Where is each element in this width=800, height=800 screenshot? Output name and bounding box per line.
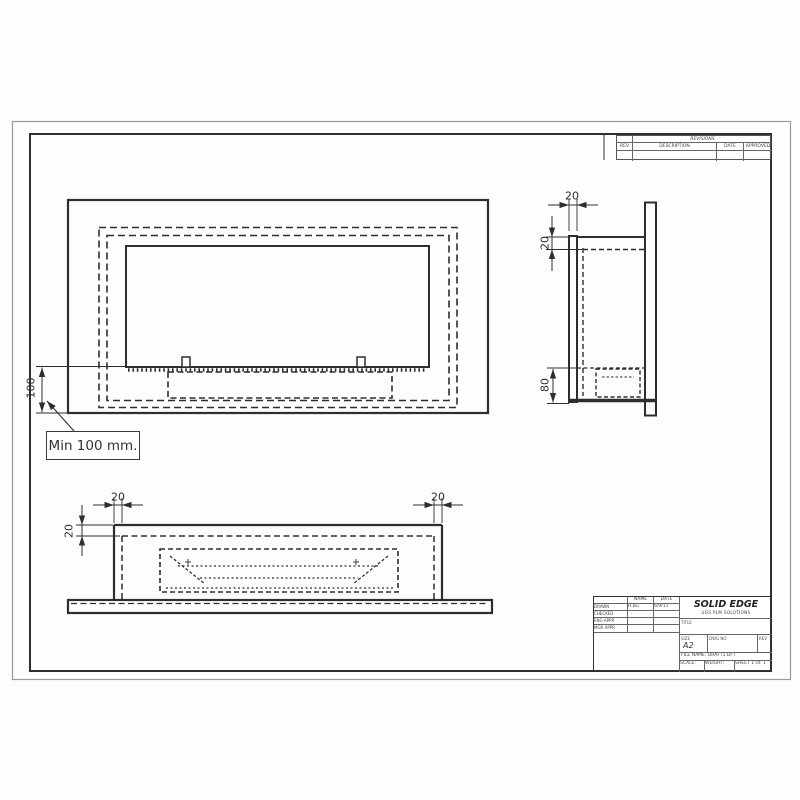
tb-blank-area <box>594 633 680 672</box>
tb-row-checked: CHECKED <box>594 611 628 618</box>
front-view <box>68 200 488 413</box>
revisions-col-approved: APPROVED <box>744 143 772 151</box>
tb-checked-name <box>628 611 654 618</box>
drawing-sheet: 100 20 20 80 20 20 20 Min 100 mm. REVISI… <box>0 0 800 800</box>
tb-col-date: DATE <box>654 597 680 604</box>
tb-file-value: DRAFT1.DFT <box>708 653 736 658</box>
tb-row-engappr: ENG APPR <box>594 618 628 625</box>
tb-sheet-cell: SHEET 1 OF 1 <box>735 661 772 672</box>
revisions-col-rev: REV <box>617 143 633 151</box>
dim-label-side-top-20: 20 <box>539 236 552 250</box>
tb-rev-cell: REV <box>758 635 772 653</box>
tb-row-mgrappr: MGR APPR <box>594 625 628 633</box>
tb-title-cell: TITLE <box>680 619 772 635</box>
dim-label-side-80: 80 <box>539 378 552 392</box>
min-clearance-note: Min 100 mm. <box>46 431 140 460</box>
dim-label-side-flange-20: 20 <box>565 190 579 203</box>
revisions-empty-cell <box>744 151 772 161</box>
tb-drawn-name: H.Bu <box>628 604 654 611</box>
bottom-view <box>68 525 492 613</box>
solid-edge-logo: SOLID EDGE <box>680 600 772 610</box>
title-block: NAME DATE DRAWN H.Bu 6/9/11 CHECKED ENG … <box>593 596 771 671</box>
tb-engappr-name <box>628 618 654 625</box>
tb-scale-cell: SCALE: <box>680 661 705 672</box>
tb-engappr-date <box>654 618 680 625</box>
tb-weight-cell: WEIGHT: <box>705 661 735 672</box>
revisions-col-description: DESCRIPTION <box>633 143 717 151</box>
tb-checked-date <box>654 611 680 618</box>
revisions-title: REVISIONS <box>633 136 772 143</box>
tb-file-label: FILE NAME: <box>681 653 706 658</box>
tb-mgrappr-date <box>654 625 680 633</box>
min-note-leader <box>47 401 74 431</box>
revisions-empty-cell <box>633 151 717 161</box>
revisions-empty-cell <box>717 151 744 161</box>
revisions-table: REVISIONS REV DESCRIPTION DATE APPROVED <box>616 135 771 160</box>
revisions-corner-cell <box>617 136 633 143</box>
tb-size-value: A2 <box>683 641 707 650</box>
tb-drawn-date: 6/9/11 <box>654 604 680 611</box>
cad-linework <box>0 0 800 800</box>
tb-brand-cell: SOLID EDGE UGS PLM SOLUTIONS <box>680 597 772 619</box>
tb-dwg-label: DWG NO <box>709 636 727 641</box>
tb-sig-corner <box>594 597 628 604</box>
dim-label-100: 100 <box>25 378 38 399</box>
solid-edge-sub: UGS PLM SOLUTIONS <box>680 610 772 615</box>
revisions-empty-cell <box>617 151 633 161</box>
revisions-col-date: DATE <box>717 143 744 151</box>
tb-rev-label: REV <box>759 636 767 641</box>
tb-file-cell: FILE NAME: DRAFT1.DFT <box>680 653 772 661</box>
tb-col-name: NAME <box>628 597 654 604</box>
tb-size-cell: SIZE A2 <box>680 635 708 653</box>
tb-title-label: TITLE <box>681 620 692 625</box>
sheet-frame <box>30 134 771 671</box>
side-dim-flange-20 <box>548 199 598 231</box>
tb-size-label: SIZE <box>681 636 690 641</box>
dim-label-bottom-right-20: 20 <box>431 491 445 504</box>
front-dim-100 <box>36 367 126 414</box>
tb-row-drawn: DRAWN <box>594 604 628 611</box>
dim-label-bottom-left-20: 20 <box>111 491 125 504</box>
side-view <box>569 203 656 416</box>
dim-label-bottom-depth-20: 20 <box>63 524 76 538</box>
tb-dwg-cell: DWG NO <box>708 635 758 653</box>
tb-mgrappr-name <box>628 625 654 633</box>
